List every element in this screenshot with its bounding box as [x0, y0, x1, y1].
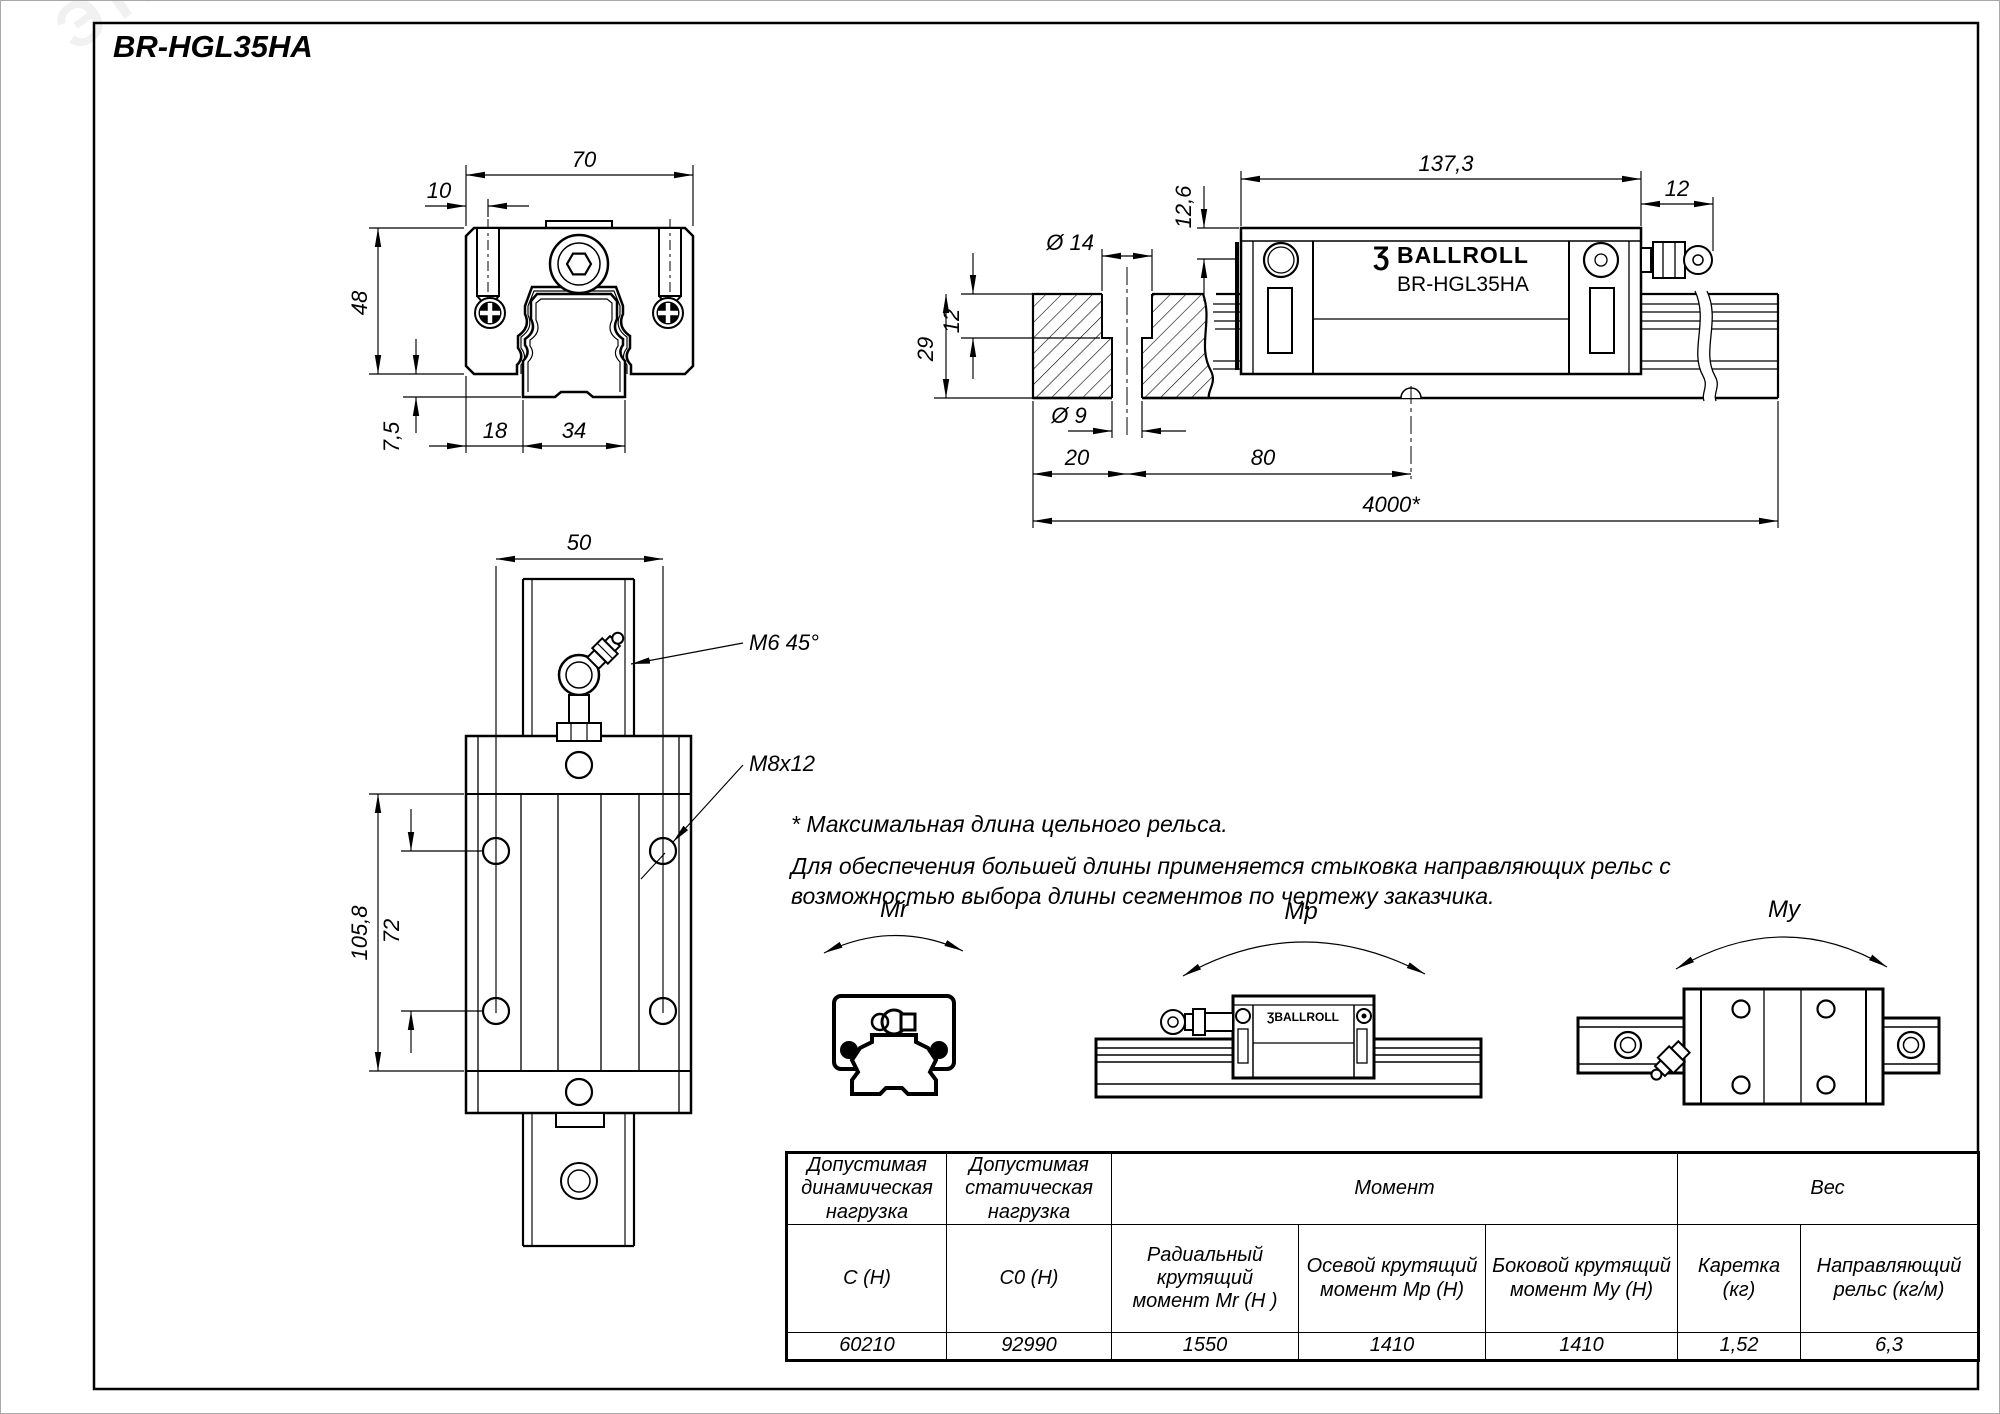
dim-label-12-6: 12,6 [1171, 185, 1196, 229]
dim-label-50: 50 [567, 530, 592, 555]
spec-header-weight: Вес [1678, 1153, 1979, 1225]
spec-sub-mp: Осевой крутящий момент Мр (Н) [1299, 1225, 1486, 1333]
dim-70: 70 [466, 147, 693, 226]
dim-label-137-3: 137,3 [1418, 151, 1474, 176]
front-view: 70 10 48 7,5 18 [347, 147, 693, 453]
spec-val-dynamic: 60210 [787, 1333, 947, 1361]
dim-label-48: 48 [347, 290, 372, 315]
moment-my: My [1578, 896, 1939, 1104]
dim-48: 48 [347, 228, 464, 374]
side-view: Ʒ BALLROLL BR-HGL35HA 137,3 [913, 151, 1778, 528]
spec-sub-dynamic: C (Н) [787, 1225, 947, 1333]
dim-dia14: Ø 14 [1045, 230, 1152, 291]
page-title: BR-HGL35HA [113, 29, 313, 65]
note-joining: Для обеспечения большей длины применяетс… [791, 851, 1811, 912]
front-center-screw [550, 235, 608, 293]
moment-mp: Mp ƷBALLROLL [1096, 898, 1481, 1097]
moment-my-carriage [1684, 989, 1883, 1104]
dim-label-34: 34 [562, 418, 586, 443]
side-rail-hole-notch [1401, 386, 1421, 479]
front-screw-left [475, 298, 505, 328]
dim-10: 10 [425, 178, 529, 217]
spec-val-mr: 1550 [1112, 1333, 1299, 1361]
dim-4000: 4000* [1033, 401, 1778, 528]
dim-34: 34 [523, 400, 625, 453]
dim-label-dia14: Ø 14 [1045, 230, 1094, 255]
spec-sub-static: C0 (Н) [947, 1225, 1112, 1333]
dim-12-6: 12,6 [1171, 185, 1239, 301]
spec-sub-my: Боковой крутящий момент Му (Н) [1486, 1225, 1678, 1333]
plan-rail-hole [561, 1163, 597, 1199]
note-max-length: * Максимальная длина цельного рельса. [791, 811, 1228, 838]
drawing-page: ЭТМ [0, 0, 2000, 1414]
spec-val-rail: 6,3 [1801, 1333, 1979, 1361]
dim-137-3: 137,3 [1241, 151, 1641, 226]
label-m6-45: M6 45° [749, 630, 819, 655]
dim-18: 18 [429, 376, 523, 453]
spec-sub-carriage: Каретка (кг) [1678, 1225, 1801, 1333]
brand-logo: BALLROLL [1397, 242, 1529, 268]
dim-80: 80 [1127, 445, 1411, 474]
dim-label-70: 70 [572, 147, 597, 172]
spec-sub-mr: Радиальный крутящий момент Mr (Н ) [1112, 1225, 1299, 1333]
spec-val-static: 92990 [947, 1333, 1112, 1361]
dim-105-8: 105,8 [347, 794, 464, 1071]
dim-label-80: 80 [1251, 445, 1276, 470]
plan-fitting-nut [557, 723, 601, 741]
dim-label-12-nipple: 12 [1665, 176, 1689, 201]
moment-mp-nipple [1161, 1009, 1233, 1035]
spec-header-moment: Момент [1112, 1153, 1678, 1225]
leader-m6: M6 45° [631, 630, 819, 664]
dim-12-nipple: 12 [1641, 176, 1713, 251]
moment-my-arrow [1676, 937, 1887, 969]
dim-label-dia9: Ø 9 [1050, 403, 1086, 428]
dim-label-72: 72 [379, 919, 404, 943]
plan-grease-fitting [559, 627, 629, 732]
brand-mark: Ʒ [1373, 241, 1390, 271]
dim-label-105-8: 105,8 [347, 905, 372, 961]
side-grease-nipple [1641, 242, 1712, 278]
side-carriage: Ʒ BALLROLL BR-HGL35HA [1237, 228, 1641, 374]
spec-header-dynamic: Допустимая динамическая нагрузка [787, 1153, 947, 1225]
dim-label-12-depth: 12 [939, 309, 964, 333]
spec-table: Допустимая динамическая нагрузка Допусти… [785, 1151, 1980, 1362]
spec-val-carriage: 1,52 [1678, 1333, 1801, 1361]
dim-label-10: 10 [427, 178, 452, 203]
front-rail-profile [523, 294, 625, 397]
spec-header-static: Допустимая статическая нагрузка [947, 1153, 1112, 1225]
plan-carriage [466, 736, 691, 1127]
moment-mp-arrow [1183, 942, 1425, 976]
dim-label-29: 29 [913, 337, 938, 362]
moment-mp-brand: ƷBALLROLL [1267, 1010, 1339, 1024]
plan-view: 50 M6 45° M8x12 105,8 72 [347, 530, 819, 1246]
moment-mr-arrow [824, 935, 963, 953]
spec-val-my: 1410 [1486, 1333, 1678, 1361]
spec-sub-rail: Направляющий рельс (кг/м) [1801, 1225, 1979, 1333]
spec-val-mp: 1410 [1299, 1333, 1486, 1361]
moment-mp-carriage: ƷBALLROLL [1233, 996, 1374, 1078]
front-screw-right [653, 298, 683, 328]
moment-mr-rail [852, 1035, 936, 1094]
moment-mr: Mr [824, 896, 963, 1094]
dim-label-20: 20 [1064, 445, 1090, 470]
label-m8x12: M8x12 [749, 751, 815, 776]
dim-dia9: Ø 9 [1050, 401, 1186, 438]
dim-label-18: 18 [483, 418, 508, 443]
dim-label-4000: 4000* [1362, 492, 1421, 517]
dim-label-7-5: 7,5 [379, 421, 404, 452]
carriage-model-label: BR-HGL35HA [1397, 273, 1529, 296]
